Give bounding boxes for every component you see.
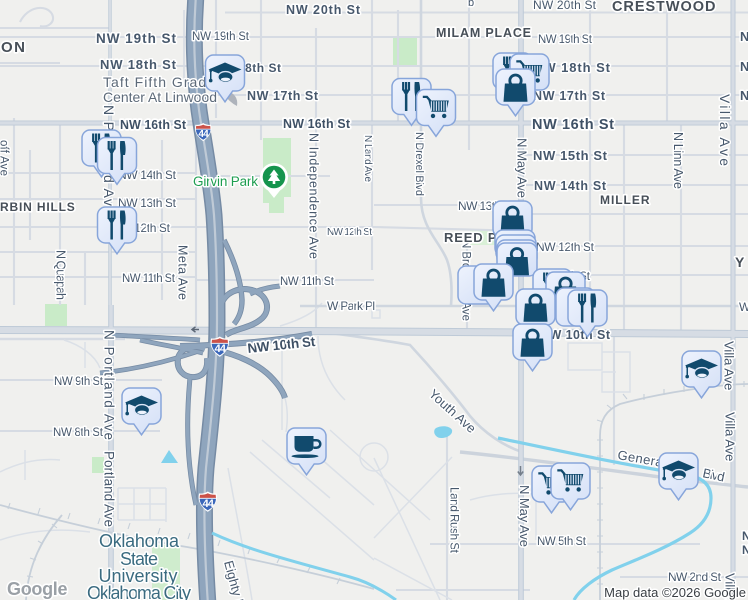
svg-text:N: N bbox=[742, 543, 748, 557]
svg-text:N Drexel Blvd: N Drexel Blvd bbox=[413, 132, 425, 196]
svg-text:Oklahoma City: Oklahoma City bbox=[87, 583, 191, 600]
svg-text:NW 2nd St: NW 2nd St bbox=[668, 570, 722, 584]
svg-text:off Ave: off Ave bbox=[0, 140, 10, 176]
svg-text:RBIN HILLS: RBIN HILLS bbox=[0, 200, 76, 214]
svg-text:NW 9th St: NW 9th St bbox=[54, 376, 104, 388]
svg-text:NW 19th St: NW 19th St bbox=[192, 31, 250, 43]
svg-text:N Quapah: N Quapah bbox=[54, 250, 68, 300]
svg-text:W Park Pl: W Park Pl bbox=[327, 299, 375, 313]
svg-text:NW 12th St: NW 12th St bbox=[536, 240, 595, 254]
svg-text:CRESTWOOD: CRESTWOOD bbox=[612, 0, 718, 15]
svg-text:Land Rush St: Land Rush St bbox=[448, 487, 462, 554]
svg-text:NW 16th St: NW 16th St bbox=[120, 118, 187, 132]
svg-text:NW 16th St: NW 16th St bbox=[532, 117, 614, 133]
svg-text:N Land Ave: N Land Ave bbox=[362, 135, 373, 182]
svg-text:N: N bbox=[742, 529, 748, 543]
svg-text:Center At Linwood: Center At Linwood bbox=[103, 89, 217, 105]
svg-text:b: b bbox=[468, 0, 474, 9]
svg-text:N: N bbox=[740, 29, 748, 44]
svg-text:N Portland Ave: N Portland Ave bbox=[102, 330, 117, 440]
svg-text:NW 17th St: NW 17th St bbox=[247, 89, 319, 103]
svg-text:Google: Google bbox=[7, 579, 67, 599]
svg-text:Villa Ave: Villa Ave bbox=[723, 412, 738, 461]
svg-text:NW 14th St: NW 14th St bbox=[534, 179, 607, 193]
svg-text:MILLER: MILLER bbox=[600, 193, 651, 207]
svg-text:NW 20th St: NW 20th St bbox=[286, 3, 361, 17]
svg-text:Girvin Park: Girvin Park bbox=[193, 174, 258, 189]
svg-text:Meta Ave: Meta Ave bbox=[176, 245, 190, 300]
svg-text:NW 12th St: NW 12th St bbox=[327, 227, 372, 238]
svg-text:Taft Fifth Grade: Taft Fifth Grade bbox=[103, 74, 215, 90]
svg-text:N May Ave: N May Ave bbox=[515, 138, 530, 198]
svg-text:NW 11th St: NW 11th St bbox=[122, 273, 176, 285]
svg-text:NW 19th St: NW 19th St bbox=[96, 31, 177, 46]
svg-text:MILAM PLACE: MILAM PLACE bbox=[436, 26, 533, 40]
svg-text:N Independence Ave: N Independence Ave bbox=[307, 133, 321, 259]
svg-text:NW 17th St: NW 17th St bbox=[533, 89, 606, 103]
svg-text:NW 16th St: NW 16th St bbox=[283, 117, 351, 131]
svg-text:N: N bbox=[740, 88, 748, 103]
svg-text:N Linn Ave: N Linn Ave bbox=[671, 132, 685, 189]
svg-text:NW 15th St: NW 15th St bbox=[533, 148, 608, 163]
svg-text:Villa Ave: Villa Ave bbox=[722, 341, 737, 390]
svg-text:NW 8th St: NW 8th St bbox=[53, 427, 104, 439]
svg-text:Y: Y bbox=[735, 254, 746, 270]
svg-text:NW 18th St: NW 18th St bbox=[100, 57, 177, 72]
svg-text:Portland Ave: Portland Ave bbox=[102, 451, 117, 527]
svg-text:N May Ave: N May Ave bbox=[517, 485, 532, 547]
svg-text:NW 20th St: NW 20th St bbox=[533, 0, 597, 12]
svg-text:Map data ©2026 Google: Map data ©2026 Google bbox=[604, 585, 746, 600]
svg-text:W Park Pl: W Park Pl bbox=[739, 300, 748, 314]
svg-text:NW 11th St: NW 11th St bbox=[280, 276, 335, 288]
svg-text:NW 5th St: NW 5th St bbox=[537, 536, 587, 548]
svg-text:N: N bbox=[740, 59, 748, 74]
svg-text:Oklahoma: Oklahoma bbox=[99, 531, 180, 551]
svg-text:ON: ON bbox=[1, 39, 27, 56]
svg-text:NW 19th St: NW 19th St bbox=[538, 34, 593, 46]
